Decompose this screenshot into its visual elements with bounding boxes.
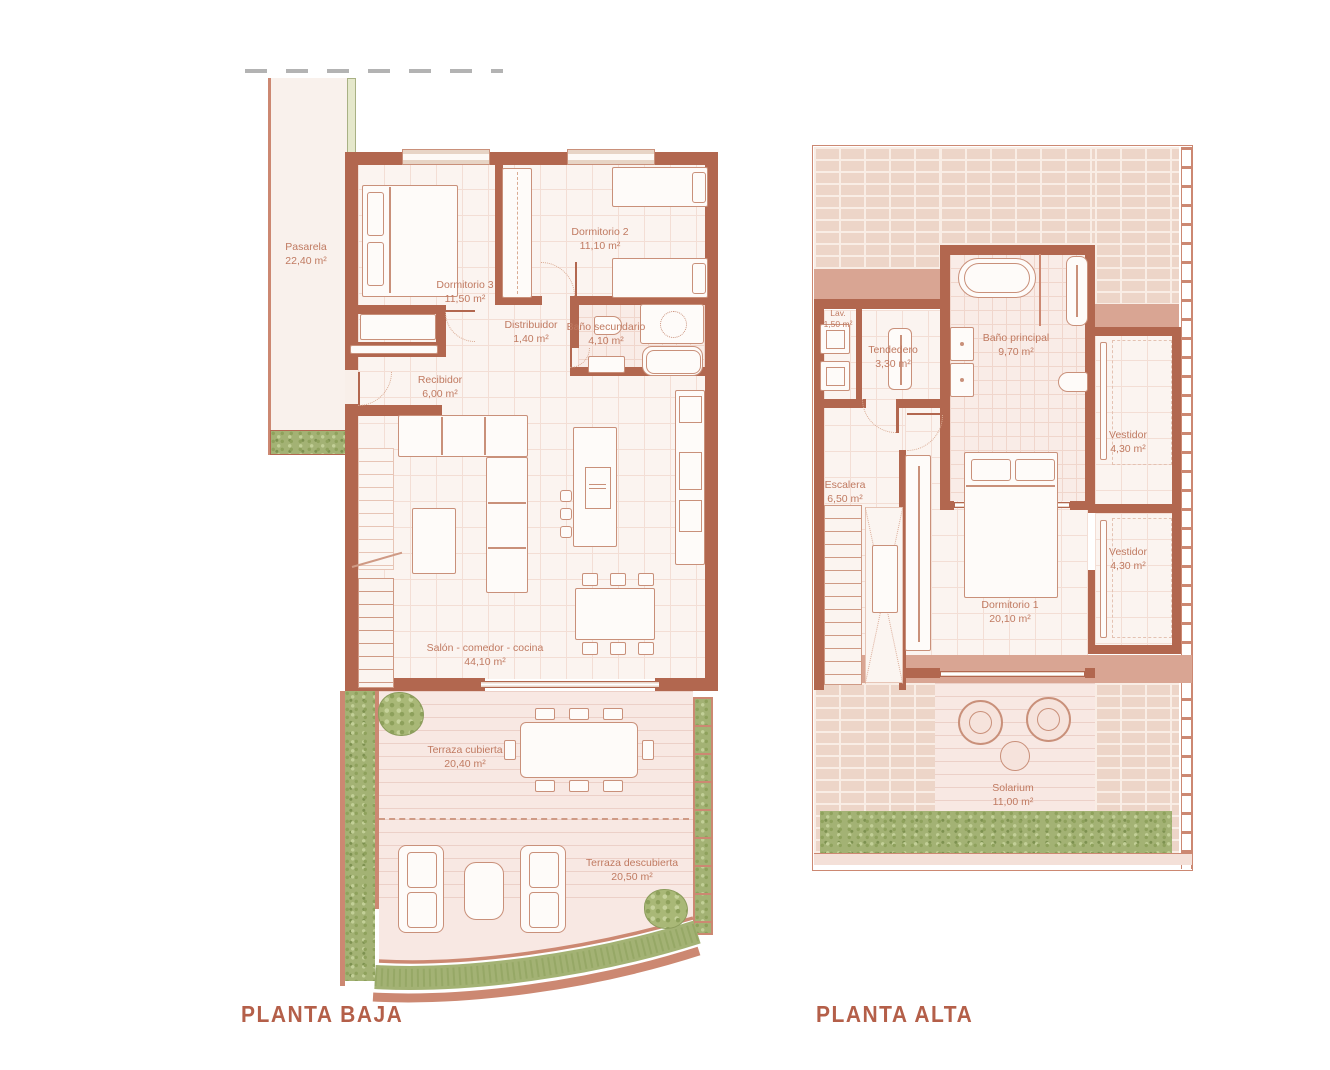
sofa-side [486,457,528,593]
door-leaf [896,399,899,433]
wall-segment [898,399,940,408]
shower-drain [660,311,687,338]
roof-band [814,269,940,302]
chair [610,642,626,655]
room-label-salon: Salón - comedor - cocina 44,10 m² [390,641,580,669]
oven [679,452,702,490]
pillow [367,192,384,236]
kitchen-counter [675,390,705,565]
window [567,149,655,165]
solarium-hedge [820,811,1172,853]
room-label-recibidor: Recibidor 6,00 m² [390,373,490,401]
stool [560,490,572,502]
plan-title-planta-alta: PLANTA ALTA [816,1002,973,1028]
sofa-cushion-line [488,502,526,504]
pasarela-end-hedge [270,430,347,455]
wall-segment [1172,327,1181,654]
roof-brick [1095,147,1179,304]
entrance-door-opening [345,370,358,404]
floorplan-sheet: Pasarela 22,40 m² Dormitorio 3 11,50 m² … [0,0,1330,1070]
wall-segment [1085,668,1095,678]
pillow [1015,459,1055,481]
room-label-solarium: Solarium 11,00 m² [953,781,1073,809]
room-label-dormitorio-3: Dormitorio 3 11,50 m² [405,278,525,306]
kitchen-sink [679,396,702,423]
room-label-pasarela: Pasarela 22,40 m² [258,240,354,268]
wall-segment [905,668,940,678]
window [402,149,490,165]
room-label-escalera: Escalera 6,50 m² [803,478,887,506]
room-label-terraza-descubierta: Terraza descubierta 20,50 m² [562,856,702,884]
wall-segment [1095,327,1180,336]
bathtub-inner [646,350,701,374]
stool [560,526,572,538]
pillow [692,172,706,203]
room-label-vestidor-2: Vestidor 4,30 m² [1088,545,1168,573]
bathtub-inner [964,263,1030,293]
sink-drain [960,378,964,382]
shower-line [1076,265,1078,317]
ottoman [412,508,456,574]
chair [582,642,598,655]
wall-segment [705,152,718,691]
cooktop [585,467,611,509]
cushion [407,892,437,928]
outdoor-sofa [398,845,444,933]
cushion [407,852,437,888]
closet-shelving [1112,518,1172,638]
pillow [692,263,706,294]
wall-segment [940,501,954,510]
stair-landing-box [872,545,898,613]
pasarela-louver-strip [347,78,356,154]
sliding-glass-door [480,681,660,688]
chair [535,708,555,720]
roof-brick [940,147,1095,246]
glass-partition [1039,254,1041,326]
chair-inner [969,711,992,734]
bathtub [958,258,1036,298]
chair [638,642,654,655]
wall-segment [1088,645,1180,654]
cooktop-line [589,488,606,489]
terrace-divider-dashed [379,818,689,820]
dormitorio2-bed-2 [612,258,708,298]
coffee-table [464,862,504,920]
round-chair [958,700,1003,745]
dormitorio2-bed-1 [612,167,708,207]
bed-line [389,187,391,293]
dormitorio3-closet [360,314,436,340]
chair [638,573,654,586]
chair [569,708,589,720]
room-label-lavadero: Lav. 1,50 m² [816,308,860,331]
wardrobe-line [918,466,920,642]
chair [535,780,555,792]
toilet [1058,372,1088,392]
room-label-terraza-cubierta: Terraza cubierta 20,40 m² [400,743,530,771]
wall-segment [345,152,718,165]
sofa-back [398,415,528,457]
pillow [971,459,1011,481]
cooktop-line [589,484,606,485]
room-label-vestidor-1: Vestidor 4,30 m² [1088,428,1168,456]
sliding-glass-door [940,671,1085,677]
outdoor-sofa [520,845,566,933]
room-label-bano-secundario: Baño secundario 4,10 m² [566,320,646,348]
chair [569,780,589,792]
bathtub-small [642,346,703,376]
bedroom-wardrobe [905,455,931,651]
round-side-table [1000,741,1030,771]
plan-title-planta-baja: PLANTA BAJA [241,1002,403,1028]
tree-icon [378,692,424,736]
plot-boundary-dashed-line [245,69,503,73]
bed-line [966,485,1055,487]
kitchen-island [573,427,617,547]
stairs [824,505,862,685]
chair [603,780,623,792]
roof-band [1095,304,1179,327]
appliance [679,500,702,532]
wardrobe-dash [517,172,518,294]
pergola-tick-strip [1181,147,1192,869]
stool [560,508,572,520]
cushion [529,852,559,888]
wall-segment [940,245,1095,255]
room-label-dormitorio-2: Dormitorio 2 11,10 m² [540,225,660,253]
wall-segment [940,245,950,510]
dormitorio1-bed [964,452,1058,598]
wall-segment [345,404,358,691]
shower-column [1066,256,1088,326]
chair [603,708,623,720]
pillow [367,242,384,286]
wall-segment [655,678,718,691]
chair [582,573,598,586]
chair [642,740,654,760]
hall-closet [350,345,438,354]
sofa-cushion-line [441,417,443,455]
wall-segment [814,399,866,408]
wall-segment [1088,570,1095,650]
wall-segment [345,305,442,314]
cushion [529,892,559,928]
solarium-bottom-strip [814,853,1192,865]
door-leaf [575,262,577,296]
room-label-tendedero: Tendedero 3,30 m² [843,343,943,371]
roof-brick [814,147,940,269]
chair [610,573,626,586]
chair-inner [1037,708,1060,731]
sink [950,363,974,397]
room-label-bano-principal: Baño principal 9,70 m² [956,331,1076,359]
closet-rod [1100,520,1107,638]
outdoor-dining-table [520,722,638,778]
tree-icon [644,889,688,929]
shower [640,304,704,344]
wall-segment [1088,504,1180,513]
sofa-cushion-line [488,547,526,549]
stairs-lower [358,578,394,688]
sofa-cushion-line [484,417,486,455]
dining-table [575,588,655,640]
round-chair [1026,697,1071,742]
stairs-upper-dashed [358,448,394,570]
room-label-dormitorio-1: Dormitorio 1 20,10 m² [950,598,1070,626]
bathroom2-sink [588,356,625,373]
